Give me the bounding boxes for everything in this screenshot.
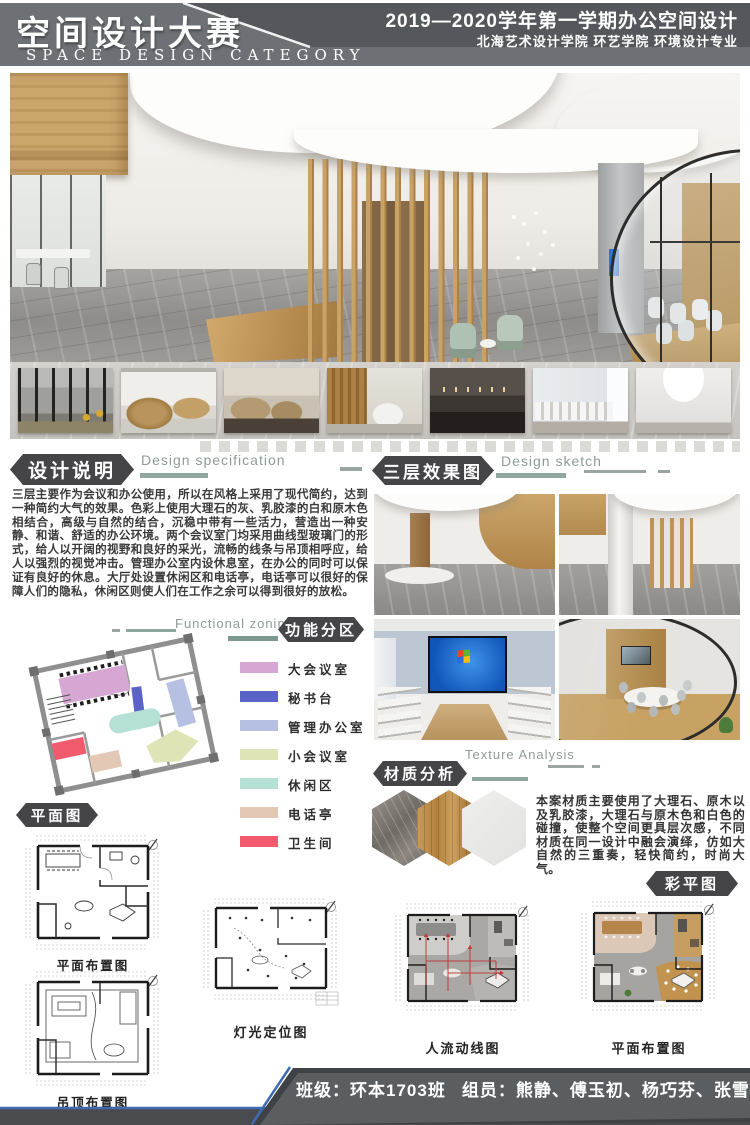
plan-caption: 人流动线图 — [391, 1038, 535, 1057]
legend-label: 小会议室 — [288, 746, 350, 765]
hero-left-table — [16, 249, 90, 258]
hero-glass-mullion — [660, 177, 662, 362]
thumbnail-4 — [327, 368, 422, 433]
legend-swatch — [240, 662, 278, 673]
section-label-texture-en: Texture Analysis — [465, 747, 575, 762]
section-label-sketch-en: Design sketch — [501, 453, 602, 469]
hero-green-chair — [450, 323, 476, 358]
section-label-design-spec: 设计说明 — [10, 454, 134, 485]
accent-dash — [658, 470, 670, 473]
legend-label: 大会议室 — [288, 659, 350, 678]
legend-swatch — [240, 836, 278, 847]
legend-label: 休闲区 — [288, 775, 335, 794]
hero-wood-cabinet — [10, 73, 128, 175]
accent-dash — [592, 765, 600, 768]
zoning-plan-drawing — [8, 628, 240, 810]
footer-class: 班级：环本1703班 — [296, 1076, 446, 1101]
thumbnail-1 — [18, 368, 113, 433]
hero-left-chair — [54, 267, 69, 289]
texture-analysis-body: 本案材质主要使用了大理石、原木以及乳胶漆，大理石与原木色和白色的碰撞，使整个空间… — [536, 795, 745, 877]
term-title: 2019—2020学年第一学期办公空间设计 — [385, 6, 738, 33]
legend-item: 管理办公室 — [240, 718, 380, 740]
accent-dash — [340, 467, 362, 471]
plan-caption: 灯光定位图 — [201, 1022, 341, 1041]
poster-page: 空间设计大赛 SPACE DESIGN CATEGORY 2019—2020学年… — [0, 0, 750, 1125]
section-label-sketch: 三层效果图 — [372, 456, 494, 485]
render-glass-meeting-room — [559, 619, 740, 740]
sketch-render-grid — [374, 494, 740, 742]
thumbnail-strip — [10, 362, 740, 439]
legend-item: 电话亭 — [240, 805, 380, 827]
legend-swatch — [240, 778, 278, 789]
hero-left-chair — [26, 263, 41, 285]
poster-subtitle-en: SPACE DESIGN CATEGORY — [26, 46, 366, 64]
thumbnail-2 — [121, 368, 216, 433]
legend-item: 大会议室 — [240, 660, 380, 682]
hero-green-chair — [497, 315, 523, 350]
plan-lighting-drawing — [200, 894, 342, 1008]
filmstrip-perforations — [200, 441, 740, 452]
section-label-plans: 平面图 — [16, 803, 98, 827]
hero-wall-decor — [512, 215, 516, 219]
thumbnail-5 — [430, 368, 525, 433]
hero-glass-mullion — [650, 241, 740, 243]
section-label-color-plan: 彩平图 — [646, 871, 738, 896]
legend-swatch — [240, 720, 278, 731]
legend-swatch — [240, 691, 278, 702]
legend-label: 秘书台 — [288, 688, 335, 707]
legend-item: 小会议室 — [240, 747, 380, 769]
render-lobby-2 — [559, 494, 740, 615]
legend-swatch — [240, 749, 278, 760]
hero-side-table — [480, 339, 496, 348]
footer-members: 组员：熊静、傅玉初、杨巧芬、张雪琪、马星星 — [462, 1076, 750, 1101]
thumbnail-3 — [224, 368, 319, 433]
footer-credits: 班级：环本1703班 组员：熊静、傅玉初、杨巧芬、张雪琪、马星星 — [296, 1076, 746, 1101]
accent-bar — [496, 473, 566, 478]
color-plan-flow-drawing — [390, 899, 534, 1017]
render-lobby-1 — [374, 494, 555, 615]
legend-label: 卫生间 — [288, 833, 335, 852]
legend-item: 休闲区 — [240, 776, 380, 798]
legend-swatch — [240, 807, 278, 818]
legend-label: 管理办公室 — [288, 717, 366, 736]
accent-bar — [472, 777, 528, 781]
accent-dash — [548, 765, 584, 768]
plan-caption: 平面布置图 — [577, 1038, 721, 1057]
legend-item: 秘书台 — [240, 689, 380, 711]
section-label-texture: 材质分析 — [373, 761, 467, 786]
thumbnail-7 — [636, 368, 731, 433]
section-label-zoning: 功能分区 — [278, 617, 364, 642]
school-line: 北海艺术设计学院 环艺学院 环境设计专业 — [477, 31, 738, 50]
thumbnail-6 — [533, 368, 628, 433]
section-label-design-spec-en: Design specification — [141, 452, 286, 468]
material-swatch-white-paint — [462, 790, 526, 866]
legend-item: 卫生间 — [240, 834, 380, 856]
hero-render-image — [10, 73, 740, 362]
accent-dash — [584, 470, 646, 473]
color-plan-layout-drawing — [576, 897, 720, 1017]
render-conference-room — [374, 619, 555, 740]
accent-bar — [140, 473, 208, 478]
hero-glass-mullion — [710, 173, 712, 362]
legend-label: 电话亭 — [288, 804, 335, 823]
plan-layout-drawing — [22, 830, 164, 954]
design-spec-body: 三层主要作为会议和办公使用，所以在风格上采用了现代简约，达到一种简约大气的效果。… — [12, 489, 368, 599]
